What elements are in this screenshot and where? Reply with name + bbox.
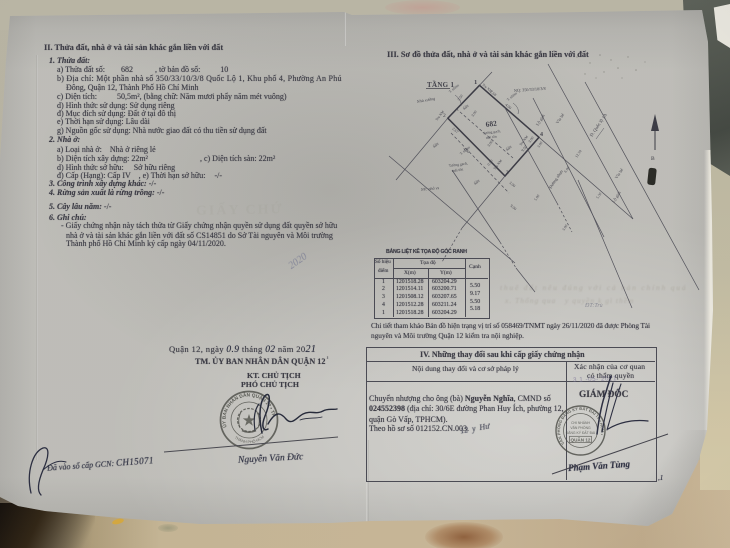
svg-text:Vỉa hè: Vỉa hè bbox=[614, 167, 625, 179]
svg-text:THÀNH PHỐ HCM: THÀNH PHỐ HCM bbox=[234, 435, 265, 444]
svg-text:682: 682 bbox=[485, 118, 498, 129]
svg-text:3.00: 3.00 bbox=[537, 141, 544, 149]
svg-text:3.00: 3.00 bbox=[562, 224, 569, 232]
svg-text:1: 1 bbox=[474, 79, 477, 86]
svg-text:Đường nhựa: Đường nhựa bbox=[548, 169, 564, 190]
svg-text:mái tôn: mái tôn bbox=[452, 167, 464, 173]
svg-text:NV: nhà vs: NV: nhà vs bbox=[420, 185, 440, 192]
svg-text:Sân: Sân bbox=[462, 103, 470, 111]
svg-text:B: B bbox=[651, 156, 655, 162]
svg-text:12.50: 12.50 bbox=[575, 149, 583, 158]
svg-text:Đ. Quốc lộ 1A: Đ. Quốc lộ 1A bbox=[589, 112, 609, 138]
svg-text:Sân: Sân bbox=[432, 141, 440, 149]
svg-text:5.00: 5.00 bbox=[534, 194, 541, 202]
svg-text:5.50: 5.50 bbox=[596, 192, 603, 200]
svg-text:Nhà xưởng: Nhà xưởng bbox=[415, 96, 435, 104]
svg-text:3.00: 3.00 bbox=[487, 140, 494, 148]
svg-text:4: 4 bbox=[540, 132, 543, 138]
svg-text:3.00: 3.00 bbox=[508, 181, 516, 188]
svg-text:ĐĂNG KÝ ĐẤT ĐAI: ĐĂNG KÝ ĐẤT ĐAI bbox=[566, 431, 596, 435]
svg-text:Vỉa hè: Vỉa hè bbox=[555, 112, 566, 124]
svg-text:CHI NHÁNH: CHI NHÁNH bbox=[571, 421, 590, 425]
svg-text:Lộ giới: Lộ giới bbox=[535, 113, 547, 127]
svg-text:9.00: 9.00 bbox=[509, 204, 517, 211]
svg-text:Sân: Sân bbox=[505, 144, 513, 152]
svg-text:3.50: 3.50 bbox=[457, 94, 464, 102]
svg-text:NQ: 350/33/10/3/8: NQ: 350/33/10/3/8 bbox=[514, 86, 546, 93]
svg-text:T. nhôm: T. nhôm bbox=[506, 91, 518, 102]
svg-text:2.68: 2.68 bbox=[489, 90, 497, 97]
svg-text:3.00: 3.00 bbox=[471, 110, 478, 118]
svg-text:VĂN PHÒNG: VĂN PHÒNG bbox=[570, 425, 591, 430]
svg-text:Sân: Sân bbox=[473, 178, 481, 186]
svg-text:3: 3 bbox=[506, 170, 509, 176]
svg-text:QUẬN 12: QUẬN 12 bbox=[571, 436, 591, 442]
svg-text:mái tôn: mái tôn bbox=[486, 134, 498, 140]
